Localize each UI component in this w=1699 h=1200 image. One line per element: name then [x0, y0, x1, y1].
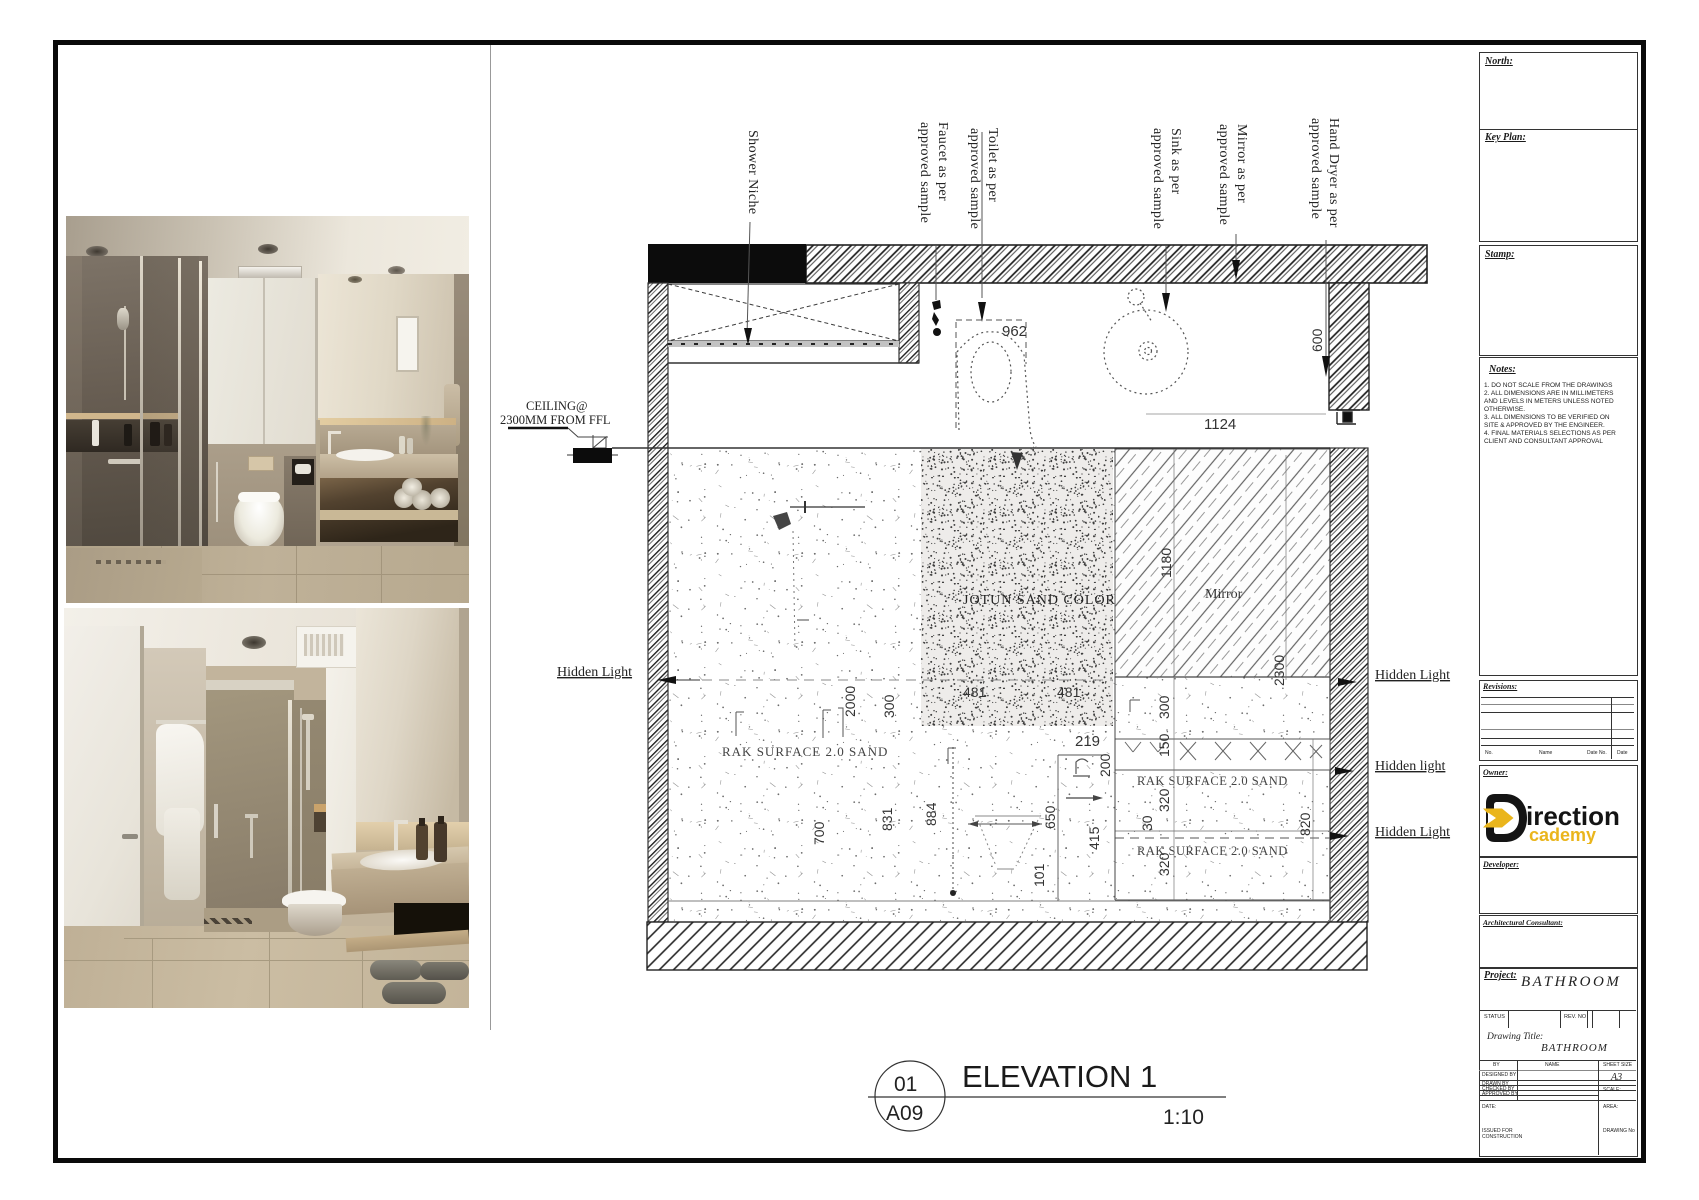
svg-text:300: 300: [881, 694, 897, 718]
svg-text:1180: 1180: [1158, 548, 1174, 578]
svg-text:481: 481: [1057, 684, 1081, 700]
svg-text:700: 700: [811, 821, 827, 845]
svg-text:200: 200: [1097, 753, 1113, 777]
svg-text:Hidden Light: Hidden Light: [1375, 825, 1450, 840]
svg-text:01: 01: [894, 1073, 917, 1096]
svg-text:150: 150: [1156, 733, 1172, 757]
svg-text:1124: 1124: [1204, 416, 1236, 433]
svg-text:approved sample: approved sample: [967, 128, 982, 229]
svg-text:30: 30: [1139, 815, 1155, 831]
svg-text:CEILING@: CEILING@: [526, 399, 588, 413]
svg-text:ELEVATION 1: ELEVATION 1: [962, 1059, 1157, 1094]
svg-text:cademy: cademy: [1529, 825, 1596, 844]
svg-text:Hand Dryer as per: Hand Dryer as per: [1326, 118, 1341, 228]
svg-text:831: 831: [879, 807, 895, 831]
svg-text:Hidden light: Hidden light: [1375, 759, 1445, 774]
svg-text:2300MM FROM FFL: 2300MM FROM FFL: [500, 413, 610, 427]
svg-text:approved sample: approved sample: [917, 122, 932, 223]
svg-text:Mirror as per: Mirror as per: [1234, 124, 1249, 203]
svg-text:2000: 2000: [842, 686, 858, 717]
svg-text:Mirror: Mirror: [1205, 587, 1243, 602]
svg-text:884: 884: [923, 802, 939, 826]
svg-text:Toilet as per: Toilet as per: [985, 128, 1000, 202]
svg-text:JOTUN SAND COLOR: JOTUN SAND COLOR: [963, 593, 1116, 608]
svg-text:RAK SURFACE 2.0 SAND: RAK SURFACE 2.0 SAND: [1137, 774, 1288, 788]
svg-text:820: 820: [1297, 812, 1313, 836]
svg-text:1:10: 1:10: [1163, 1106, 1204, 1129]
svg-text:Hidden Light: Hidden Light: [1375, 668, 1450, 683]
svg-text:approved sample: approved sample: [1308, 118, 1323, 219]
svg-text:approved sample: approved sample: [1216, 124, 1231, 225]
svg-text:300: 300: [1156, 695, 1172, 719]
svg-text:320: 320: [1156, 788, 1172, 812]
svg-text:320: 320: [1156, 852, 1172, 876]
svg-text:Hidden Light: Hidden Light: [557, 665, 632, 680]
svg-text:219: 219: [1075, 733, 1100, 750]
svg-text:962: 962: [1002, 323, 1027, 340]
svg-text:Sink as per: Sink as per: [1168, 128, 1183, 195]
svg-text:2300: 2300: [1271, 655, 1287, 686]
svg-text:A09: A09: [886, 1102, 923, 1125]
svg-text:650: 650: [1042, 805, 1058, 829]
svg-text:101: 101: [1031, 863, 1047, 887]
svg-text:600: 600: [1309, 328, 1325, 352]
svg-text:approved sample: approved sample: [1150, 128, 1165, 229]
svg-text:RAK SURFACE 2.0 SAND: RAK SURFACE 2.0 SAND: [722, 744, 888, 759]
svg-text:415: 415: [1086, 826, 1102, 850]
svg-text:Shower Niche: Shower Niche: [745, 130, 760, 215]
svg-text:Faucet as per: Faucet as per: [935, 122, 950, 201]
svg-text:481: 481: [963, 684, 987, 700]
